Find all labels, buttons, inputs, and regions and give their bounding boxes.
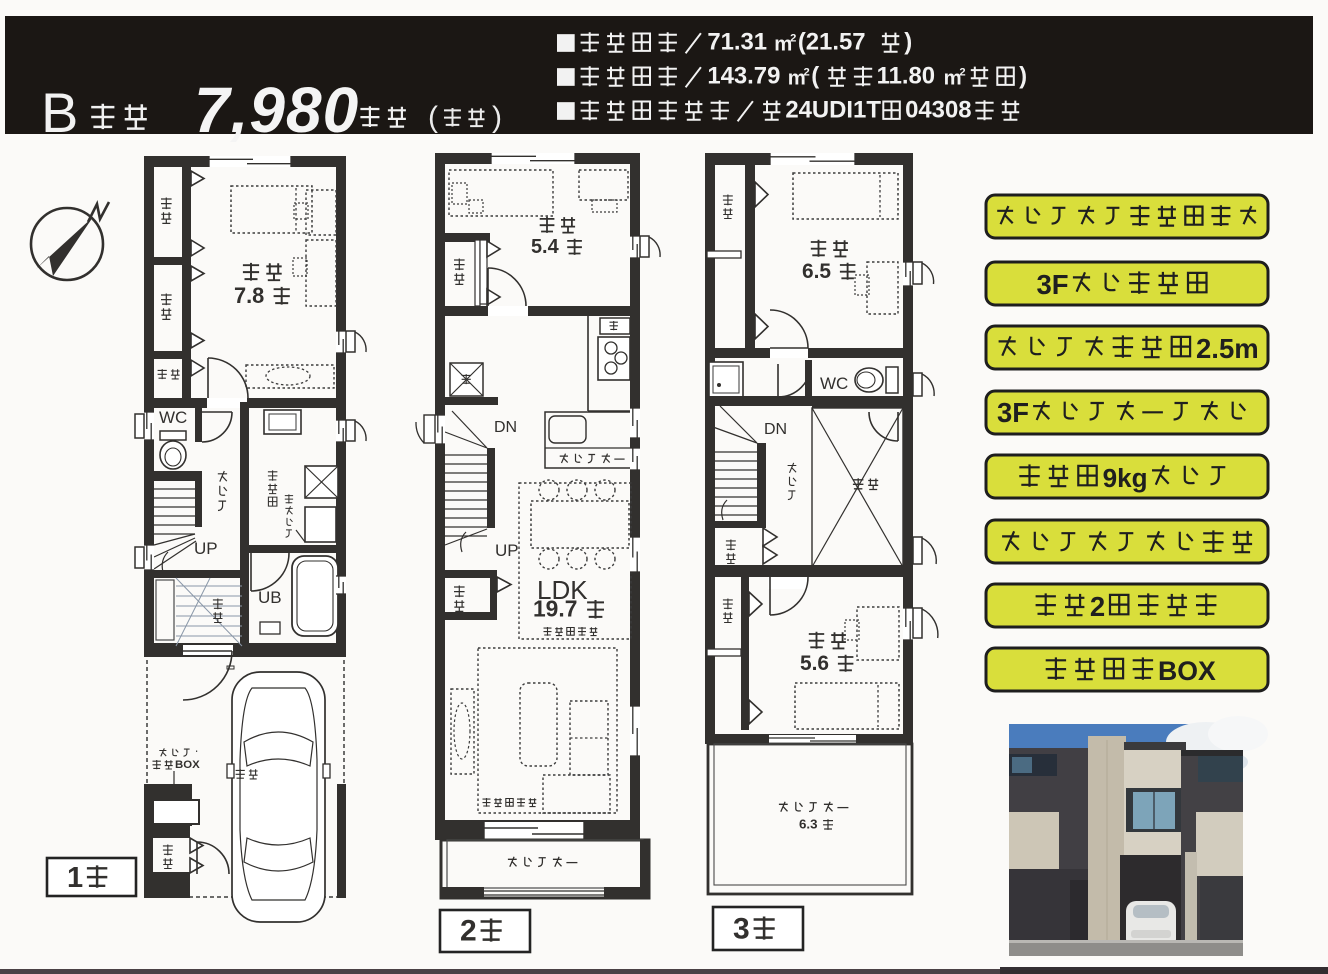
svg-text:143.79: 143.79: [707, 62, 780, 89]
svg-text:2: 2: [1090, 591, 1105, 622]
svg-text:B: B: [41, 81, 78, 144]
svg-text:5.4: 5.4: [531, 236, 559, 258]
svg-text:7,980: 7,980: [194, 74, 359, 146]
svg-text:3: 3: [733, 913, 750, 946]
svg-text:UP: UP: [194, 539, 218, 558]
svg-text:): ): [1019, 62, 1027, 89]
svg-text:DN: DN: [494, 419, 517, 436]
svg-text:): ): [492, 101, 502, 134]
svg-text:BOX: BOX: [175, 759, 200, 771]
svg-text:11.80: 11.80: [877, 62, 935, 89]
svg-text:6.5: 6.5: [802, 260, 831, 283]
svg-text:(21.57: (21.57: [798, 28, 866, 55]
svg-text:3F: 3F: [997, 397, 1029, 428]
svg-text:19.7: 19.7: [533, 596, 577, 622]
svg-text:UP: UP: [495, 541, 519, 560]
svg-text:2: 2: [959, 67, 965, 79]
svg-text:2: 2: [804, 67, 810, 79]
svg-text:(: (: [428, 101, 438, 134]
svg-text:2.5m: 2.5m: [1196, 333, 1259, 364]
svg-text:WC: WC: [159, 408, 187, 427]
svg-text:DN: DN: [764, 421, 787, 438]
svg-text:71.31: 71.31: [707, 28, 767, 55]
svg-text:5.6: 5.6: [800, 652, 829, 675]
svg-text:BOX: BOX: [1158, 656, 1216, 686]
svg-text:7.8: 7.8: [234, 283, 264, 308]
svg-text:04308: 04308: [905, 96, 971, 123]
svg-text:3F: 3F: [1037, 269, 1069, 300]
svg-text:(: (: [811, 62, 819, 89]
svg-text:2: 2: [790, 33, 796, 45]
svg-text:): ): [904, 28, 912, 55]
svg-text:1: 1: [67, 862, 83, 894]
svg-text:6.3: 6.3: [799, 817, 818, 832]
svg-text:WC: WC: [820, 374, 848, 393]
svg-text:2: 2: [460, 915, 477, 948]
svg-text:24UDI1T: 24UDI1T: [785, 96, 881, 123]
svg-text:UB: UB: [258, 588, 282, 607]
svg-text:9kg: 9kg: [1103, 463, 1148, 493]
